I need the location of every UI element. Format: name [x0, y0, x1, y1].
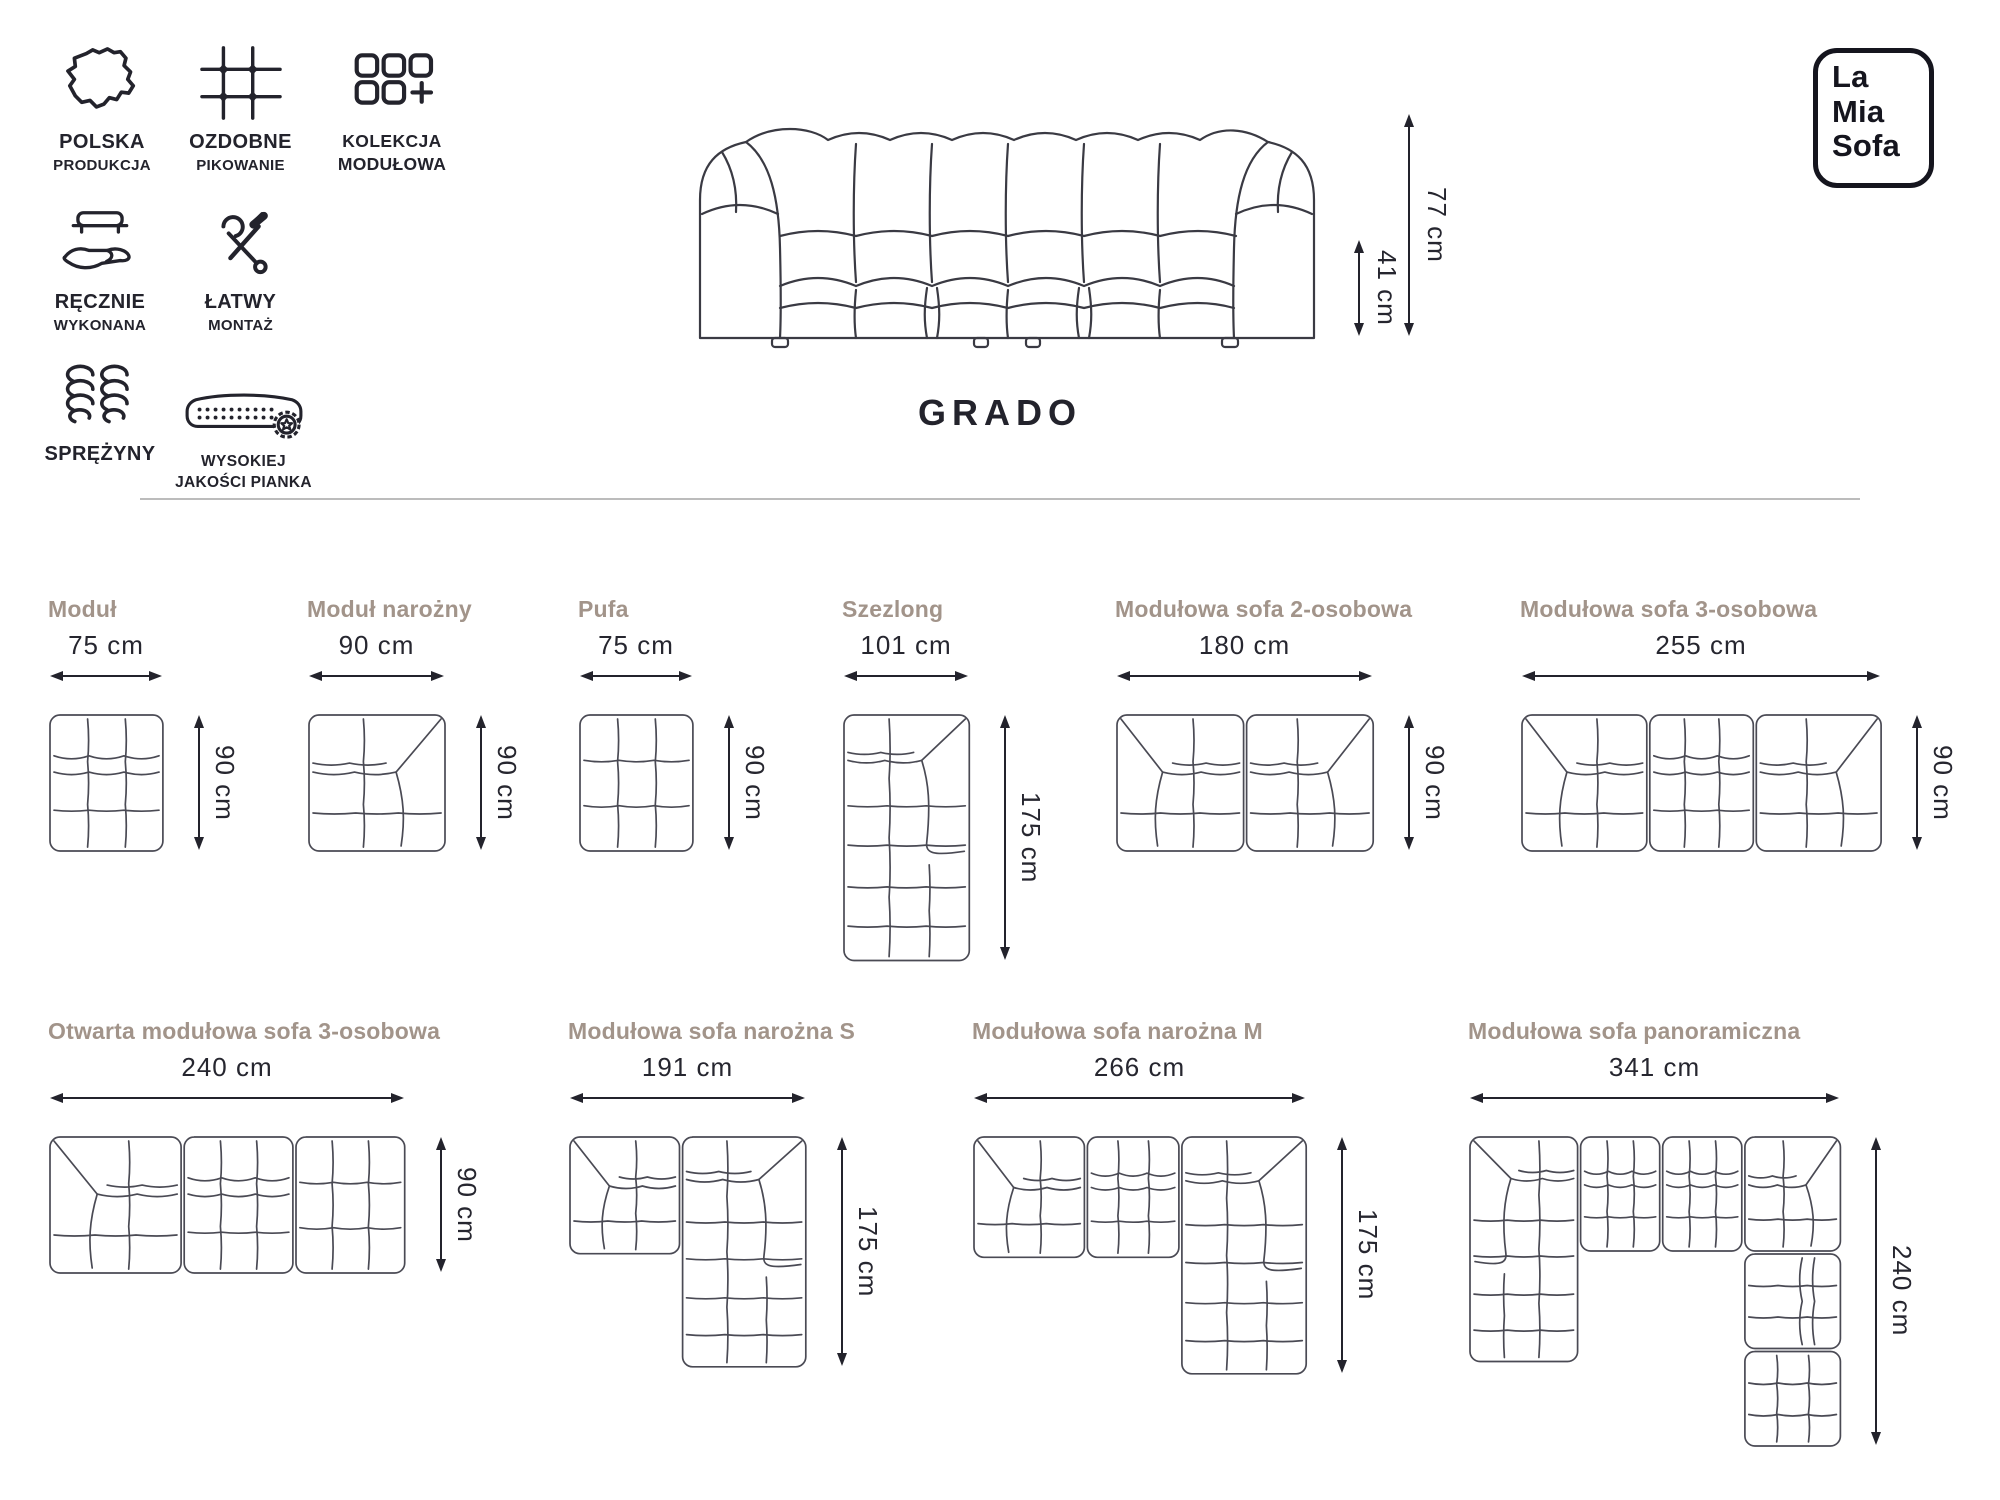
diagram-modulowa-sofa-narozna-m: Modułowa sofa narożna M266 cm175 cm — [972, 1018, 1391, 1387]
diagram-height-label: 175 cm — [851, 1135, 883, 1368]
sofa-front-illustration — [676, 86, 1338, 358]
total-height-label: 77 cm — [1420, 112, 1452, 338]
diagram-pufa: Pufa75 cm90 cm — [578, 596, 778, 864]
diagram-otwarta-modulowa-sofa-3-osobowa: Otwarta modułowa sofa 3-osobowa240 cm90 … — [48, 1018, 490, 1286]
diagram-modulowa-sofa-3-osobowa: Modułowa sofa 3-osobowa255 cm90 cm — [1520, 596, 1966, 864]
diagram-height-label: 240 cm — [1885, 1135, 1917, 1447]
product-name: GRADO — [800, 392, 1200, 434]
width-dimension-arrow — [307, 668, 446, 684]
feature-title: SPRĘŻYNY — [25, 443, 175, 466]
diagram-width-label: 90 cm — [307, 630, 446, 661]
sofa-in-hand-icon — [25, 196, 175, 284]
feature-title: KOLEKCJA — [312, 131, 472, 151]
diagram-height-label: 90 cm — [450, 1135, 482, 1274]
total-height-arrow — [1400, 112, 1418, 338]
quilting-grid-icon — [163, 36, 318, 124]
feature-title: POLSKA — [27, 131, 177, 154]
width-dimension-arrow — [842, 668, 970, 684]
height-dimension-arrow — [190, 713, 208, 852]
height-dimension-arrow — [1908, 713, 1926, 852]
height-dimension-arrow — [720, 713, 738, 852]
height-dimension-arrow — [833, 1135, 851, 1368]
foam-badge-icon — [156, 372, 331, 446]
diagram-drawing — [842, 713, 974, 966]
poland-map-icon — [27, 36, 177, 124]
height-dimension-arrow — [1867, 1135, 1885, 1447]
modular-collection-icon — [312, 36, 472, 124]
diagram-width-label: 101 cm — [842, 630, 970, 661]
diagram-height-label: 90 cm — [738, 713, 770, 852]
diagram-width-label: 240 cm — [48, 1052, 406, 1083]
seat-height-label: 41 cm — [1370, 238, 1402, 338]
feature-subtitle: PIKOWANIE — [163, 157, 318, 174]
diagram-modul-narozny: Moduł narożny90 cm90 cm — [307, 596, 530, 864]
diagram-drawing — [307, 713, 450, 856]
feature-ozdobne-pikowanie: OZDOBNE PIKOWANIE — [163, 36, 318, 174]
diagram-height-label: 175 cm — [1014, 713, 1046, 962]
diagram-width-label: 191 cm — [568, 1052, 807, 1083]
diagram-drawing — [1520, 713, 1886, 856]
feature-wysokiej-jakosci-pianka: WYSOKIEJ JAKOŚCI PIANKA — [156, 372, 331, 492]
spec-sheet-page: POLSKA PRODUKCJA OZDOBNE PIKOWANIE — [0, 0, 2000, 1500]
diagram-modul: Moduł75 cm90 cm — [48, 596, 248, 864]
diagram-width-label: 75 cm — [48, 630, 164, 661]
diagram-width-label: 341 cm — [1468, 1052, 1841, 1083]
springs-icon — [25, 362, 175, 436]
width-dimension-arrow — [578, 668, 694, 684]
diagram-width-label: 75 cm — [578, 630, 694, 661]
diagram-drawing — [48, 713, 168, 856]
feature-subtitle: MODUŁOWA — [312, 154, 472, 175]
diagram-modulowa-sofa-narozna-s: Modułowa sofa narożna S191 cm175 cm — [568, 1018, 891, 1380]
feature-latwy-montaz: ŁATWY MONTAŻ — [163, 196, 318, 334]
width-dimension-arrow — [568, 1090, 807, 1106]
diagram-height-label: 90 cm — [208, 713, 240, 852]
feature-subtitle: JAKOŚCI PIANKA — [156, 474, 331, 492]
brand-line: La — [1832, 60, 1929, 95]
height-dimension-arrow — [996, 713, 1014, 962]
seat-height-arrow — [1350, 238, 1368, 338]
diagram-drawing — [972, 1135, 1311, 1379]
diagram-title: Modułowa sofa narożna S — [568, 1018, 855, 1045]
height-dimension-arrow — [1333, 1135, 1351, 1375]
diagram-szezlong: Szezlong101 cm175 cm — [842, 596, 1054, 974]
diagram-drawing — [48, 1135, 410, 1278]
width-dimension-arrow — [48, 1090, 406, 1106]
diagram-title: Szezlong — [842, 596, 943, 623]
brand-logo: La Mia Sofa — [1813, 48, 1934, 188]
width-dimension-arrow — [1520, 668, 1882, 684]
feature-title: ŁATWY — [163, 291, 318, 314]
diagram-drawing — [568, 1135, 811, 1372]
feature-title: RĘCZNIE — [25, 291, 175, 314]
diagram-drawing — [1468, 1135, 1845, 1451]
diagram-height-label: 90 cm — [1926, 713, 1958, 852]
feature-sprezyny: SPRĘŻYNY — [25, 362, 175, 469]
feature-title: OZDOBNE — [163, 131, 318, 154]
feature-recznie-wykonana: RĘCZNIE WYKONANA — [25, 196, 175, 334]
brand-line: Mia — [1832, 95, 1929, 130]
tools-icon — [163, 196, 318, 284]
diagram-height-label: 90 cm — [1418, 713, 1450, 852]
section-divider — [140, 498, 1860, 500]
feature-title: WYSOKIEJ — [156, 453, 331, 471]
diagram-title: Modułowa sofa 3-osobowa — [1520, 596, 1817, 623]
brand-line: Sofa — [1832, 129, 1929, 164]
diagram-drawing — [578, 713, 698, 856]
height-dimension-arrow — [472, 713, 490, 852]
diagram-title: Moduł narożny — [307, 596, 472, 623]
diagram-width-label: 266 cm — [972, 1052, 1307, 1083]
width-dimension-arrow — [972, 1090, 1307, 1106]
width-dimension-arrow — [1468, 1090, 1841, 1106]
diagram-title: Modułowa sofa panoramiczna — [1468, 1018, 1800, 1045]
diagram-modulowa-sofa-panoramiczna: Modułowa sofa panoramiczna341 cm240 cm — [1468, 1018, 1925, 1459]
width-dimension-arrow — [48, 668, 164, 684]
diagram-title: Otwarta modułowa sofa 3-osobowa — [48, 1018, 440, 1045]
diagram-title: Modułowa sofa 2-osobowa — [1115, 596, 1412, 623]
height-dimension-arrow — [432, 1135, 450, 1274]
diagram-height-label: 90 cm — [490, 713, 522, 852]
diagram-width-label: 255 cm — [1520, 630, 1882, 661]
width-dimension-arrow — [1115, 668, 1374, 684]
feature-subtitle: WYKONANA — [25, 317, 175, 334]
diagram-title: Moduł — [48, 596, 117, 623]
feature-subtitle: PRODUKCJA — [27, 157, 177, 174]
height-dimension-arrow — [1400, 713, 1418, 852]
diagram-modulowa-sofa-2-osobowa: Modułowa sofa 2-osobowa180 cm90 cm — [1115, 596, 1458, 864]
feature-kolekcja-modulowa: KOLEKCJA MODUŁOWA — [312, 36, 472, 175]
diagram-title: Pufa — [578, 596, 629, 623]
feature-polska-produkcja: POLSKA PRODUKCJA — [27, 36, 177, 174]
diagram-title: Modułowa sofa narożna M — [972, 1018, 1263, 1045]
feature-subtitle: MONTAŻ — [163, 317, 318, 334]
diagram-height-label: 175 cm — [1351, 1135, 1383, 1375]
diagram-drawing — [1115, 713, 1378, 856]
diagram-width-label: 180 cm — [1115, 630, 1374, 661]
